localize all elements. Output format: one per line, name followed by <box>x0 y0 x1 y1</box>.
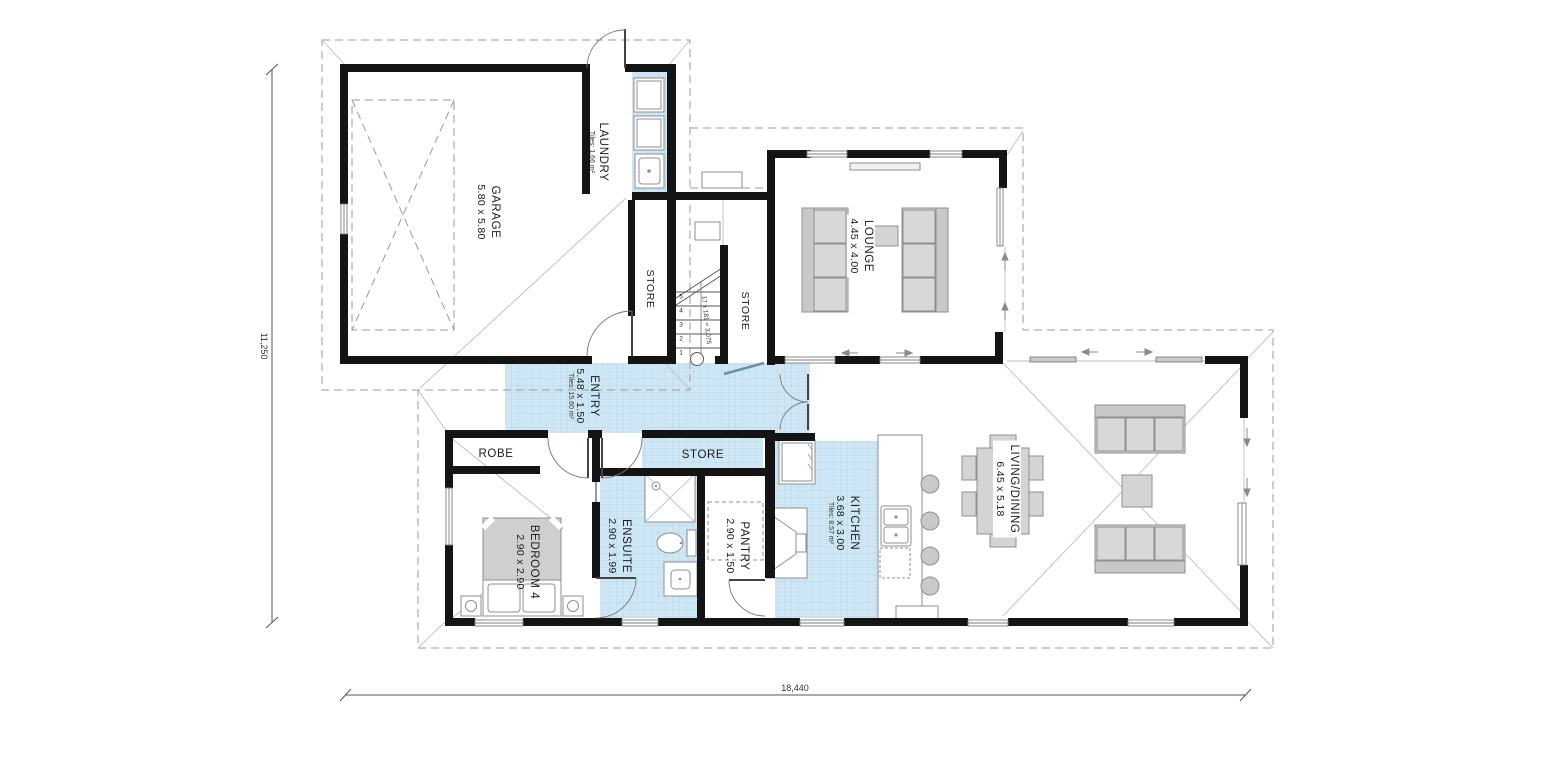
island-bench <box>878 435 922 625</box>
floorplan-page: GARAGE 5.80 x 5.80 LAUNDRY Tiles: 1.66 m… <box>0 0 1560 757</box>
living-sofa-top <box>1095 405 1185 453</box>
arrow-up <box>1002 303 1008 320</box>
living-sofa-bottom <box>1095 525 1185 573</box>
arrow-right <box>1136 349 1152 355</box>
window <box>997 188 1003 246</box>
stair-cupboard <box>695 222 720 240</box>
floorplan-drawing <box>0 0 1560 757</box>
robe-door <box>548 438 588 478</box>
washing-machine <box>634 78 664 112</box>
stair-number-4: 4 <box>679 308 683 315</box>
stair-newel <box>691 353 704 366</box>
window <box>785 357 835 363</box>
pantry-door <box>729 580 765 616</box>
shower <box>645 474 695 522</box>
arrow-up <box>1002 253 1008 270</box>
entry-door-north <box>587 29 625 68</box>
laundry-tub <box>635 154 664 188</box>
lounge-sofa-right <box>902 208 948 312</box>
bar-stools <box>921 475 939 595</box>
fridge <box>779 440 815 484</box>
arrow-down <box>1244 478 1250 496</box>
pantry-shelves <box>708 502 763 560</box>
arrow-left <box>1082 349 1098 355</box>
living-side-table <box>1122 475 1152 507</box>
window <box>446 488 452 545</box>
arrow-right <box>896 350 912 356</box>
stair-number-2: 2 <box>679 336 683 343</box>
console-table <box>702 172 742 188</box>
window <box>968 620 1008 626</box>
stair-number-3: 3 <box>679 322 683 329</box>
dimension-width: 18,440 <box>781 683 809 693</box>
stair-number-1: 1 <box>679 350 683 357</box>
vanity <box>664 562 697 596</box>
window <box>930 151 962 157</box>
bed <box>483 518 561 616</box>
sliding-door-panel <box>1156 357 1202 362</box>
window <box>475 620 523 626</box>
window <box>622 620 658 626</box>
stair-number-5: 5 <box>679 294 683 301</box>
dimension-height: 11,250 <box>259 333 269 360</box>
window <box>880 357 920 363</box>
arrow-down <box>1244 428 1250 446</box>
window <box>800 620 844 626</box>
dining-table <box>962 435 1043 547</box>
lounge-coffee-table <box>868 226 898 246</box>
sliding-door-panel <box>1030 357 1076 362</box>
window <box>807 151 847 157</box>
window <box>341 204 347 234</box>
dryer <box>634 116 664 150</box>
tv-unit <box>850 163 920 170</box>
arrow-left <box>842 350 858 356</box>
lounge-sofa-left <box>802 208 848 312</box>
window <box>1128 620 1174 626</box>
garage-hall-door <box>587 311 632 356</box>
window <box>1238 503 1246 565</box>
